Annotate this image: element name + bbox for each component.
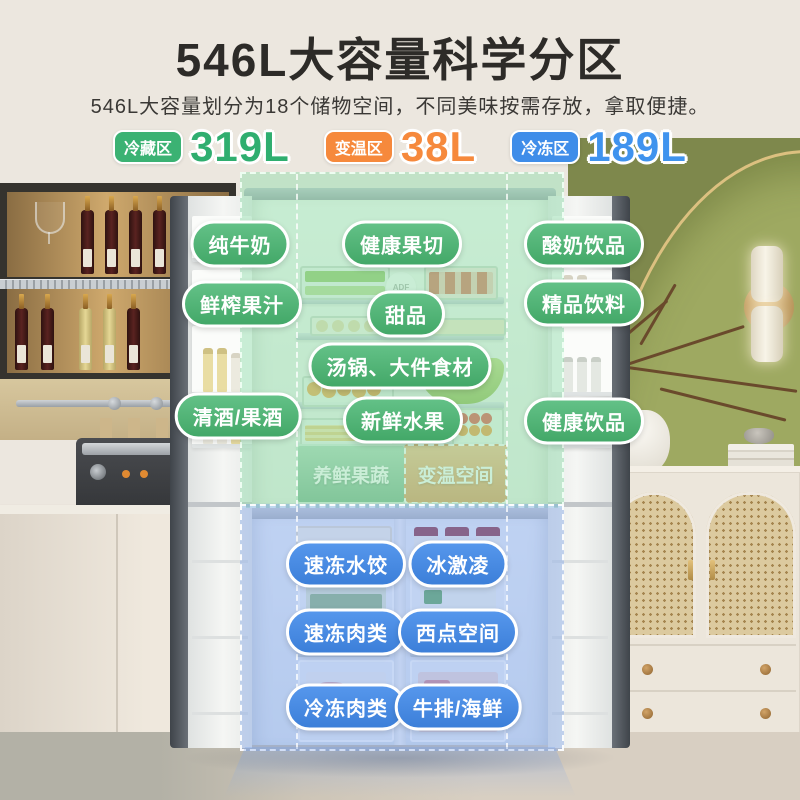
label-quick-frozen-meat: 速冻肉类 <box>286 609 406 656</box>
capacity-badge-freezer: 冷冻区 189L <box>510 123 687 171</box>
label-frozen-meat: 冷冻肉类 <box>286 684 406 731</box>
wine-bottle <box>129 210 142 274</box>
label-pastry-space: 西点空间 <box>398 609 518 656</box>
capacity-badges: 冷藏区 319L 变温区 38L 冷冻区 189L <box>0 124 800 170</box>
zone-divider-line <box>506 174 508 506</box>
drawer-line <box>604 690 796 692</box>
zone-tag: 冷藏区 <box>113 130 183 164</box>
label-premium-drinks: 精品饮料 <box>524 280 644 327</box>
drawer-knob <box>642 664 653 675</box>
capacity-badge-variable: 变温区 38L <box>324 123 476 171</box>
label-frozen-dumplings: 速冻水饺 <box>286 541 406 588</box>
label-pure-milk: 纯牛奶 <box>191 221 290 268</box>
wine-bottle <box>79 308 92 370</box>
label-yogurt-drinks: 酸奶饮品 <box>524 221 644 268</box>
rattan-sideboard <box>600 466 800 740</box>
label-healthy-fruit-cuts: 健康果切 <box>342 221 462 268</box>
rattan-door <box>706 492 796 638</box>
rail-knob <box>150 397 163 410</box>
wine-bottle <box>41 308 54 370</box>
drawer-knob <box>760 664 771 675</box>
page-title: 546L大容量科学分区 <box>0 24 800 90</box>
label-fresh-fruit: 新鲜水果 <box>343 397 463 444</box>
zone-divider-line <box>296 174 298 506</box>
decor-bowl <box>744 428 774 444</box>
drawer-knob <box>760 708 771 719</box>
label-ice-cream: 冰激凌 <box>409 541 508 588</box>
label-sake-fruit-wine: 清酒/果酒 <box>175 393 302 440</box>
label-soup-pot-large: 汤锅、大件食材 <box>309 343 492 390</box>
wine-bottle <box>153 210 166 274</box>
cabinet-handle <box>710 560 715 580</box>
wall-lamp-shade <box>751 246 783 302</box>
zone-tag: 冷冻区 <box>510 130 580 164</box>
bottle <box>203 348 213 392</box>
page-subtitle: 546L大容量划分为18个储物空间，不同美味按需存放，拿取便捷。 <box>0 90 800 119</box>
zone-value: 319L <box>190 123 290 171</box>
label-steak-seafood: 牛排/海鲜 <box>395 684 522 731</box>
left-door-edge <box>170 196 188 748</box>
cabinet-handle <box>688 560 693 580</box>
water-bottle <box>577 357 587 392</box>
wine-bottle <box>127 308 140 370</box>
promo-page: ADF 养鲜果蔬 变温空间 <box>0 0 800 800</box>
zone-tag: 变温区 <box>324 130 394 164</box>
zone-value: 189L <box>587 123 687 171</box>
freezer-zone-floor-glow <box>224 747 576 797</box>
drawer-line <box>604 644 796 646</box>
wine-glass <box>35 202 65 234</box>
label-dessert: 甜品 <box>367 291 445 338</box>
toaster <box>76 438 182 508</box>
label-fresh-juice: 鲜榨果汁 <box>182 281 302 328</box>
water-bottle <box>591 357 601 392</box>
book-stack <box>728 444 794 468</box>
capacity-badge-cold: 冷藏区 319L <box>113 123 290 171</box>
wine-bottle <box>15 308 28 370</box>
wine-bottle <box>105 210 118 274</box>
wine-bottle <box>103 308 116 370</box>
zone-value: 38L <box>401 123 476 171</box>
cabinet-seam <box>116 514 118 758</box>
wine-bottle <box>81 210 94 274</box>
bottle <box>217 348 227 392</box>
label-healthy-drinks: 健康饮品 <box>524 398 644 445</box>
water-bottle <box>563 357 573 392</box>
drawer-knob <box>642 708 653 719</box>
wall-lamp-shade <box>751 306 783 362</box>
rail-knob <box>108 397 121 410</box>
